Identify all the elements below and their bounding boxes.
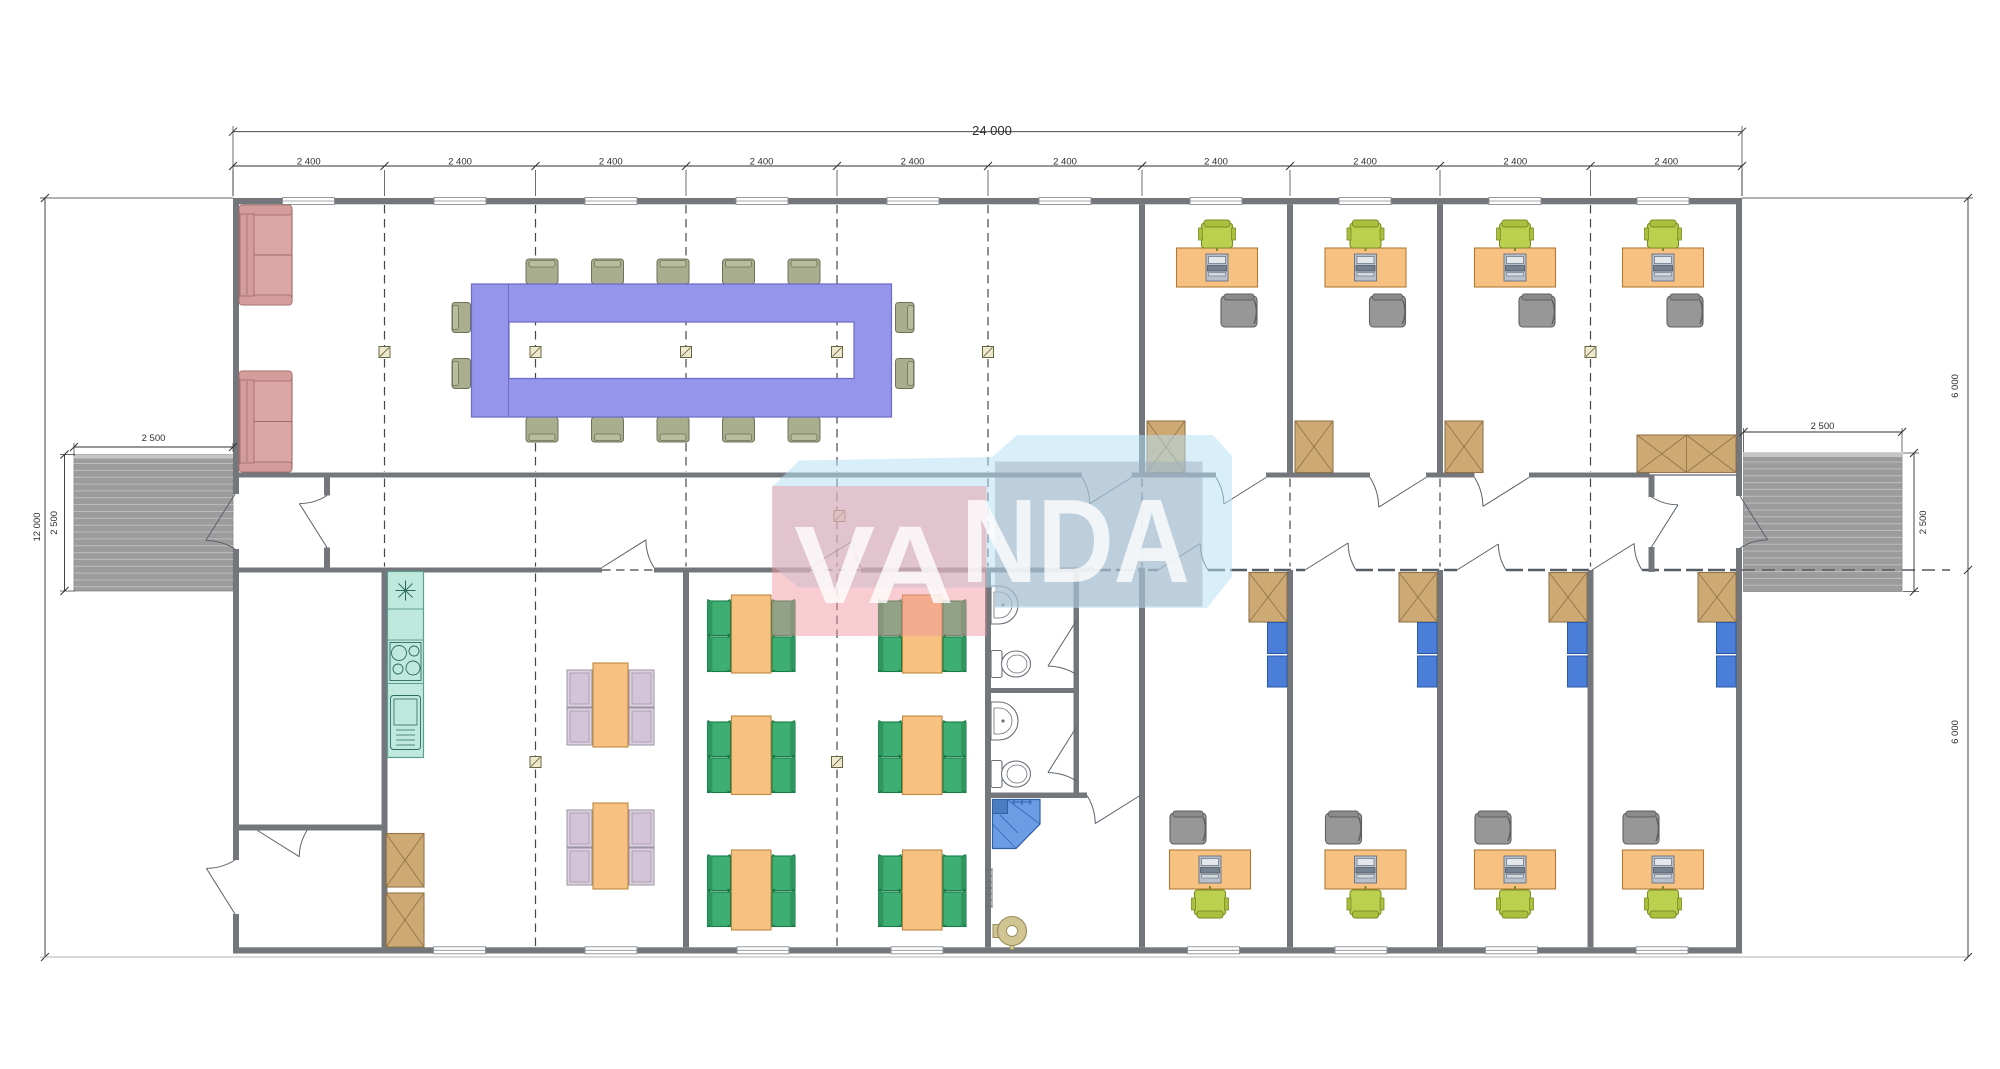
svg-text:2 400: 2 400 [750,157,774,168]
svg-text:2 400: 2 400 [1204,157,1228,168]
svg-text:2 500: 2 500 [1811,421,1835,432]
svg-text:2 500: 2 500 [49,511,60,535]
svg-text:2 400: 2 400 [1654,157,1678,168]
svg-text:2 400: 2 400 [1053,157,1077,168]
svg-text:VA: VA [794,504,954,627]
svg-text:6 000: 6 000 [1950,374,1961,398]
svg-text:NDA: NDA [961,476,1190,608]
svg-text:12 000: 12 000 [32,512,43,541]
svg-text:2 400: 2 400 [448,157,472,168]
svg-text:24 000: 24 000 [972,123,1012,138]
svg-text:2 400: 2 400 [1353,157,1377,168]
svg-text:2 400: 2 400 [901,157,925,168]
svg-text:2 500: 2 500 [1918,510,1929,534]
svg-text:6 000: 6 000 [1950,720,1961,744]
svg-text:2 400: 2 400 [297,157,321,168]
svg-text:2 500: 2 500 [142,433,166,444]
svg-text:2 400: 2 400 [1503,157,1527,168]
svg-text:2 400: 2 400 [599,157,623,168]
